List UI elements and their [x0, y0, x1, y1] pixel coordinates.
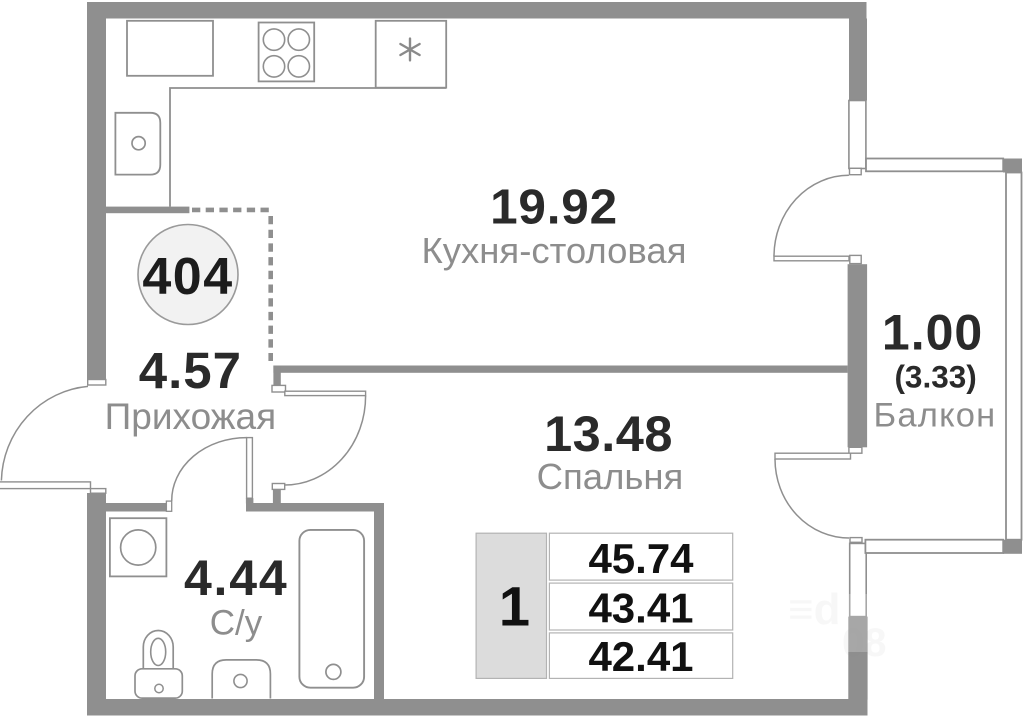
svg-text:43.41: 43.41	[588, 585, 693, 632]
svg-text:13.48: 13.48	[544, 405, 673, 462]
svg-text:45.74: 45.74	[588, 535, 694, 582]
svg-text:Балкон: Балкон	[874, 397, 997, 435]
svg-text:4.44: 4.44	[184, 550, 289, 606]
svg-text:(3.33): (3.33)	[894, 359, 976, 395]
svg-text:19.92: 19.92	[490, 179, 618, 234]
svg-text:4.57: 4.57	[139, 342, 242, 399]
svg-text:Спальня: Спальня	[537, 456, 684, 497]
svg-text:42.41: 42.41	[588, 633, 693, 680]
svg-text:Кухня-столовая: Кухня-столовая	[422, 230, 687, 271]
svg-text:1.00: 1.00	[882, 305, 983, 361]
svg-text:Прихожая: Прихожая	[105, 396, 276, 437]
svg-text:1: 1	[499, 575, 530, 638]
svg-text:404: 404	[142, 248, 233, 306]
svg-text:С/у: С/у	[210, 604, 263, 643]
svg-text:≡d: ≡d	[788, 585, 841, 634]
